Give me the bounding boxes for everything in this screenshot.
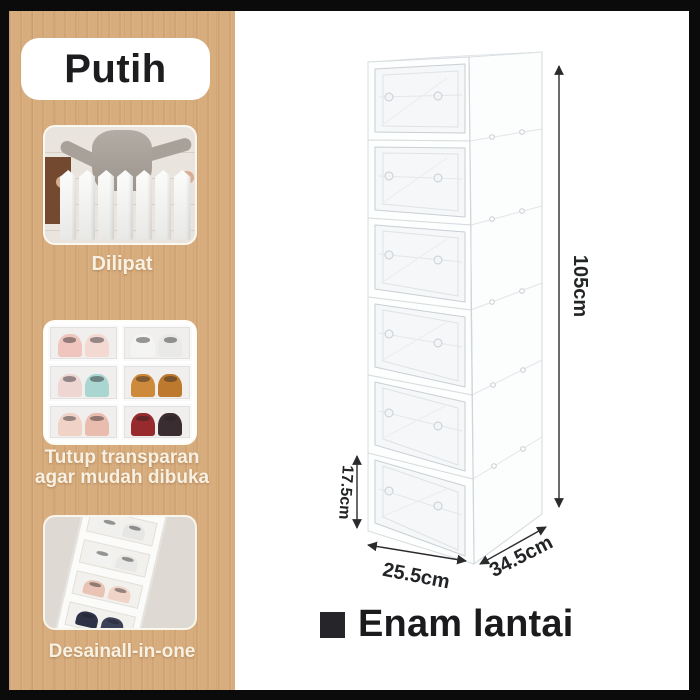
caption-line: Tutup transparan bbox=[9, 448, 235, 468]
height-dimension-label: 105cm bbox=[569, 255, 591, 317]
shoe-cell bbox=[48, 325, 119, 361]
product-banner: Putih Dilipat Tutu bbox=[0, 0, 700, 700]
shoe-cell bbox=[48, 364, 119, 400]
tier-count-label: Enam lantai bbox=[358, 603, 574, 646]
feature-photo-diagonal-rack bbox=[43, 515, 197, 630]
height-dimension: 105cm bbox=[559, 66, 591, 507]
cabinet-tier bbox=[368, 57, 470, 141]
cabinet-front bbox=[368, 57, 474, 564]
tier-count-callout: Enam lantai bbox=[320, 603, 574, 646]
tier-height-dimension: 17.5cm bbox=[335, 456, 357, 528]
shoe-cell bbox=[122, 364, 193, 400]
shoe-cell bbox=[122, 325, 193, 361]
feature-photo-folded-organizer bbox=[43, 125, 197, 245]
folded-organizer-pleats bbox=[60, 170, 191, 240]
feature-caption-dilipat: Dilipat bbox=[9, 253, 235, 276]
tier-height-dimension-label: 17.5cm bbox=[335, 465, 356, 520]
cabinet-side-panel bbox=[469, 52, 542, 564]
variant-badge: Putih bbox=[21, 38, 210, 100]
variant-badge-label: Putih bbox=[64, 47, 166, 92]
shoe-cell bbox=[48, 404, 119, 440]
cabinet-tier bbox=[368, 140, 471, 225]
product-display-area: 105cm 17.5cm 25.5cm 34.5cm Enam lantai bbox=[235, 11, 689, 690]
cabinet-diagram: 105cm 17.5cm 25.5cm 34.5cm bbox=[300, 30, 680, 610]
left-feature-panel: Putih Dilipat Tutu bbox=[9, 11, 235, 690]
feature-photo-shoe-grid bbox=[43, 320, 197, 445]
caption-line: agar mudah dibuka bbox=[9, 468, 235, 488]
width-dimension-label: 25.5cm bbox=[381, 559, 452, 594]
square-bullet-icon bbox=[320, 612, 345, 638]
shoe-grid bbox=[48, 325, 192, 440]
cabinet-tier bbox=[368, 218, 471, 310]
diagonal-shoe-strip bbox=[54, 515, 167, 630]
feature-caption-all-in-one: Desainall-in-one bbox=[9, 641, 235, 663]
shoe-cell bbox=[122, 404, 193, 440]
feature-caption-tutup-transparan: Tutup transparan agar mudah dibuka bbox=[9, 448, 235, 488]
